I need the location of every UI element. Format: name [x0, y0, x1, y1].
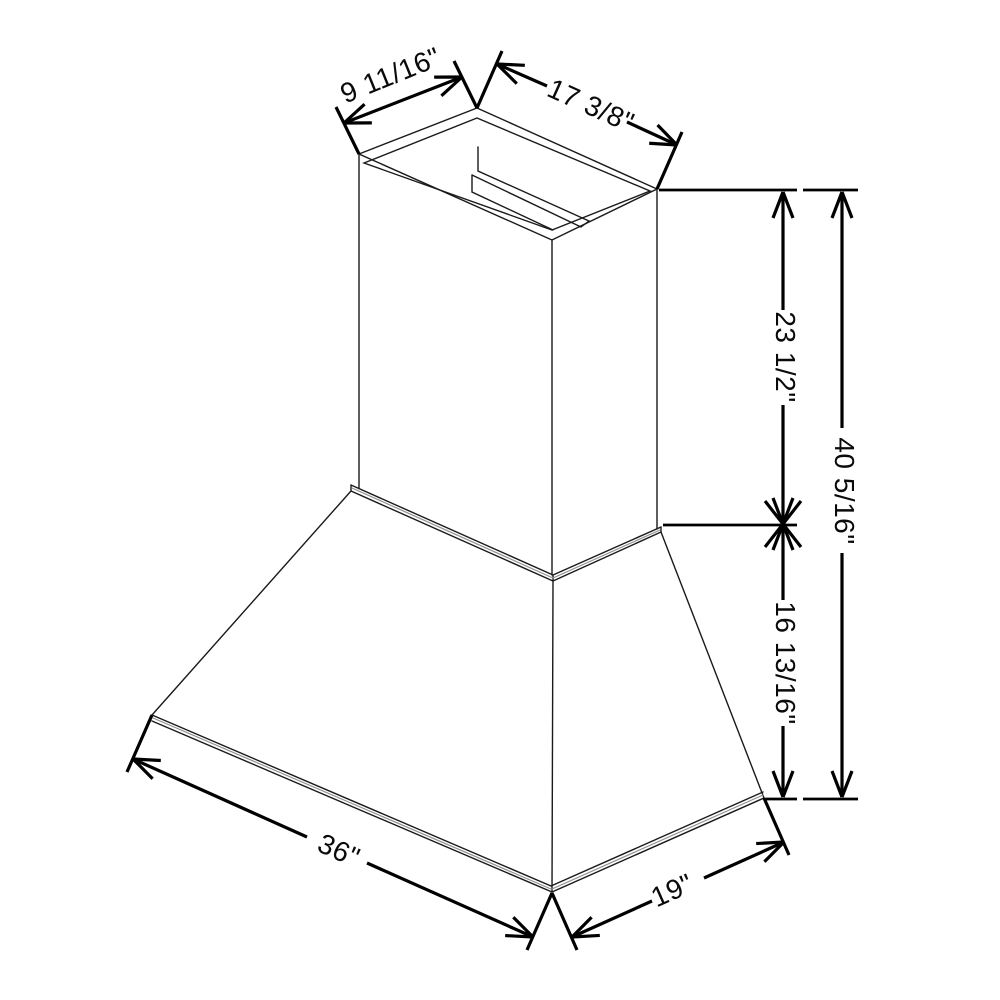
range-hood-dimension-drawing: 9 11/16" 17 3/8" 23 1/2" 40 5/16" 16 13/… [0, 0, 1000, 1000]
dim-label-overall-height: 40 5/16" [829, 437, 860, 544]
dim-label-chimney-height: 23 1/2" [770, 311, 801, 402]
dim-label-hood-height: 16 13/16" [770, 601, 801, 724]
drawing-canvas: 9 11/16" 17 3/8" 23 1/2" 40 5/16" 16 13/… [0, 0, 1000, 1000]
